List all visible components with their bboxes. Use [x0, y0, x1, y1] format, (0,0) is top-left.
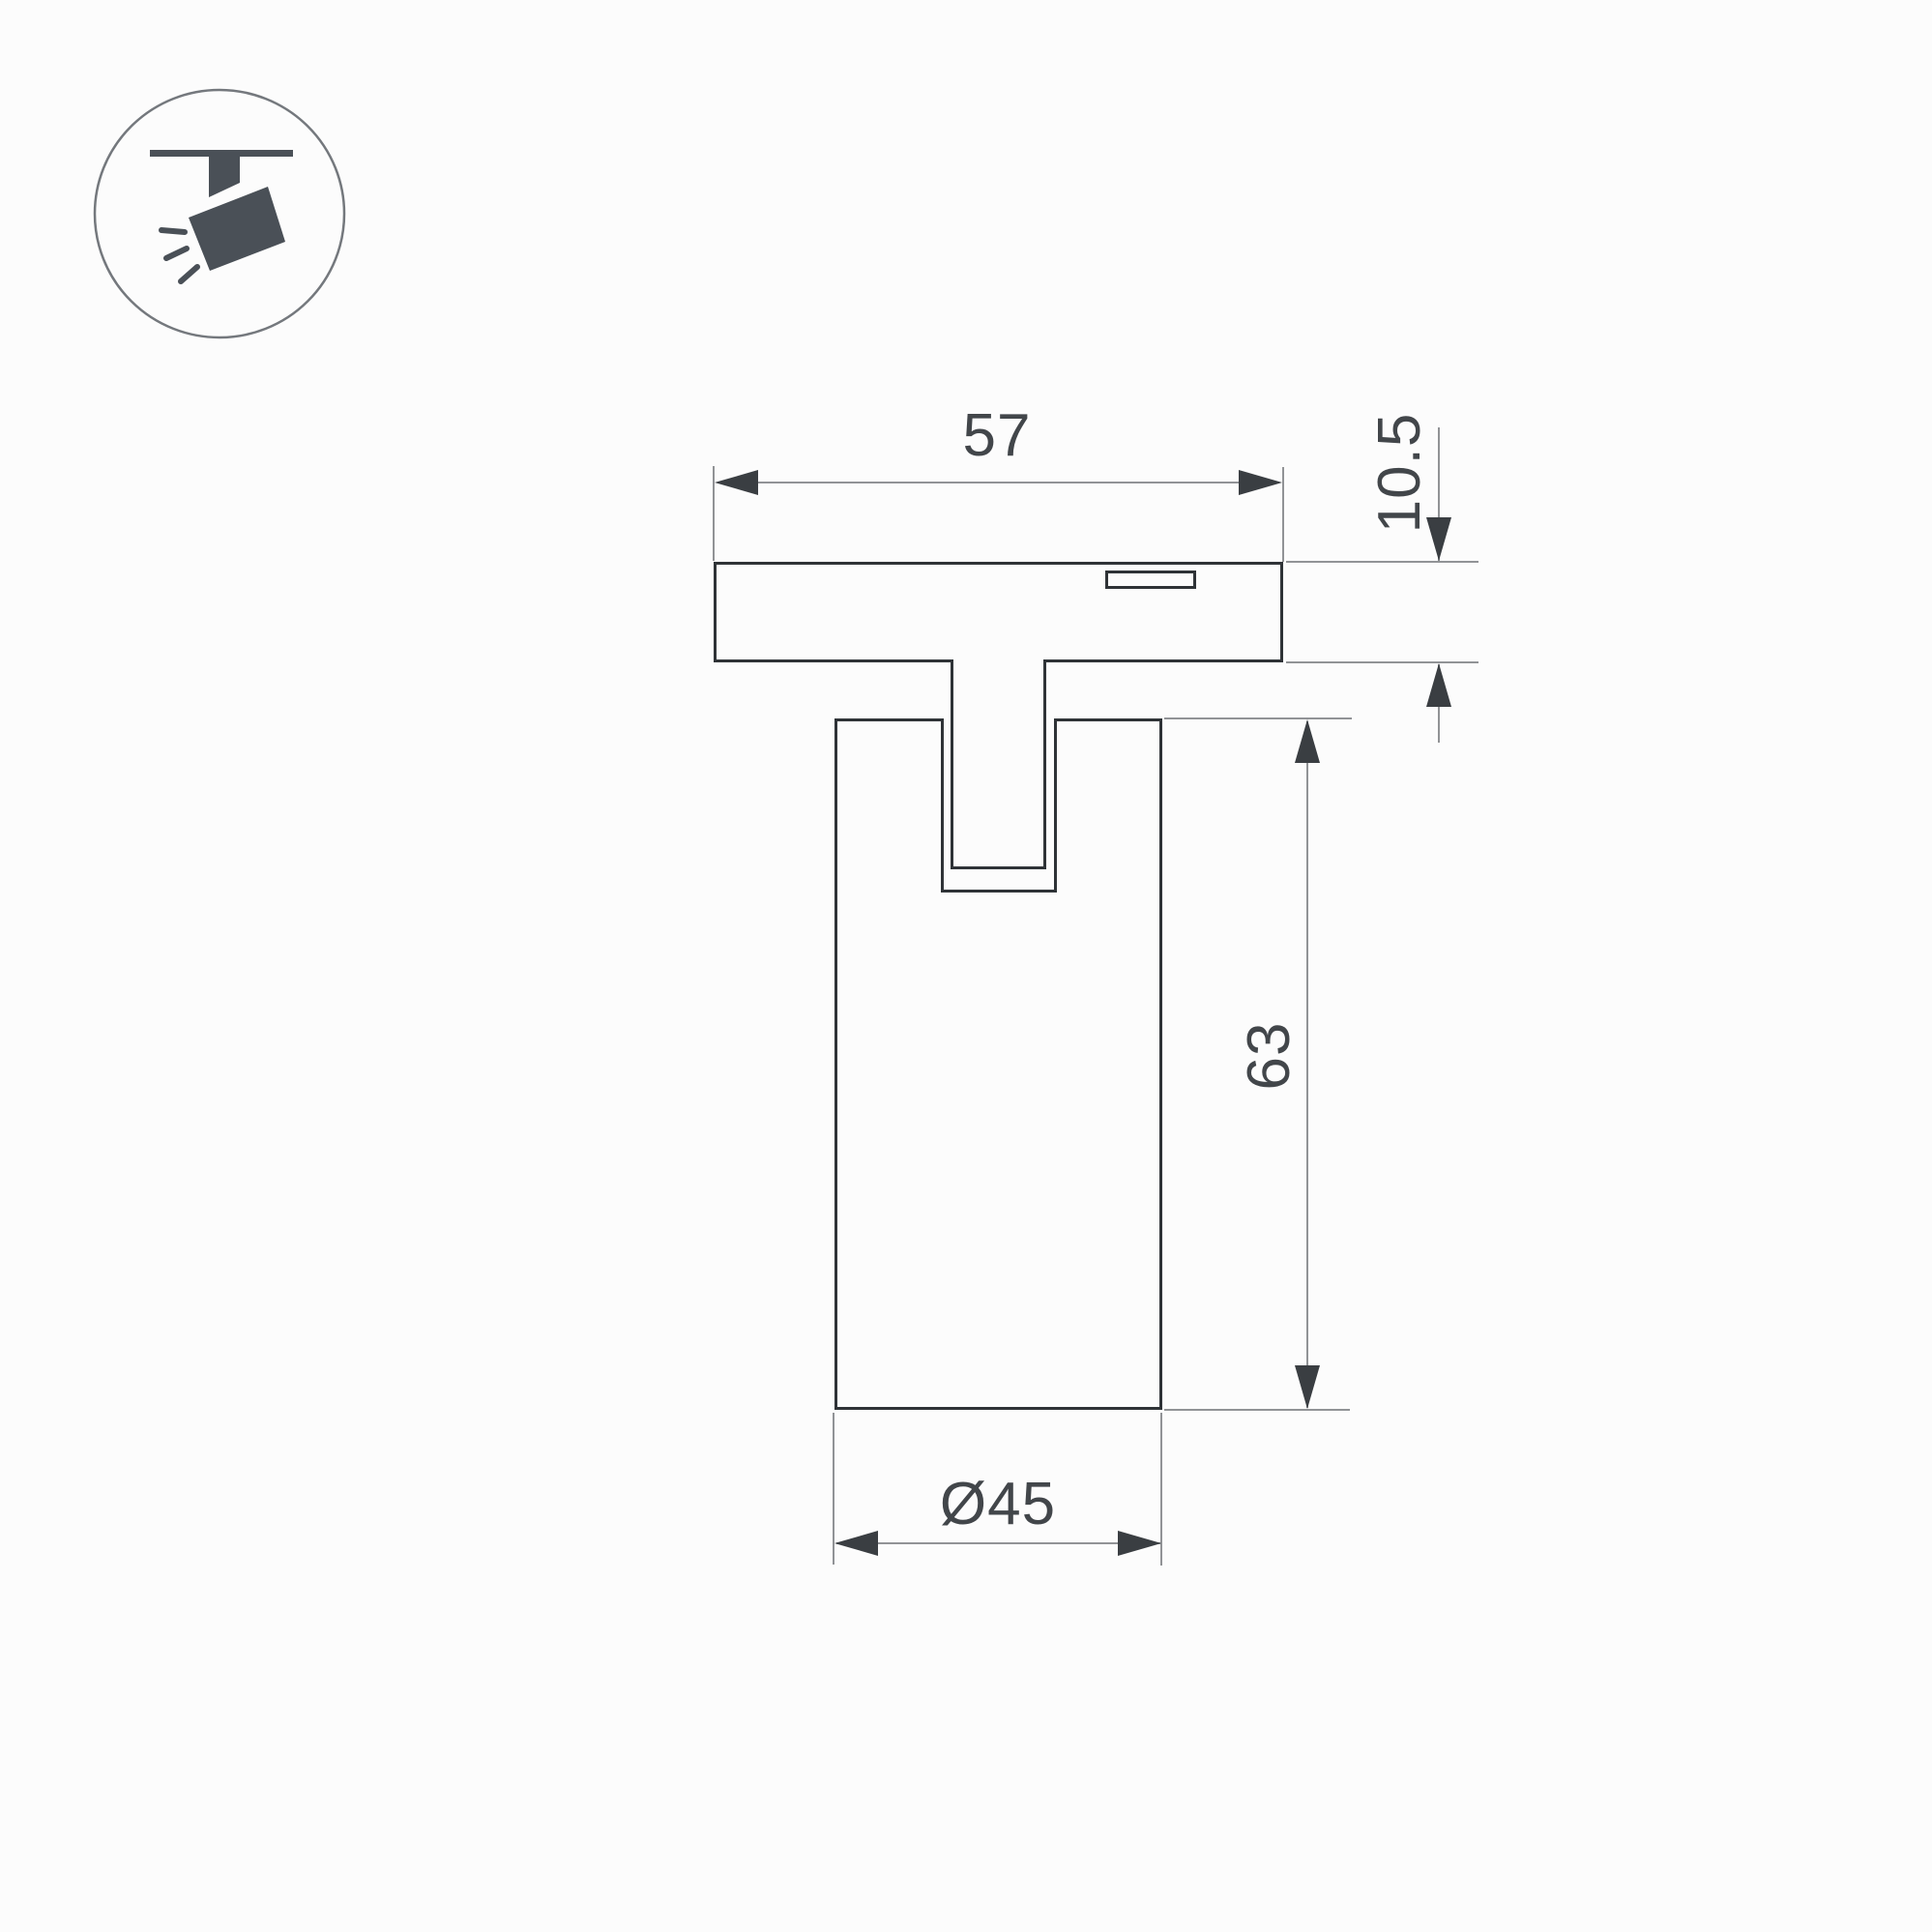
icon-lamp-head: [189, 187, 285, 271]
dim-57-line: [717, 482, 1279, 483]
dim-label-body-height: 63: [1240, 1022, 1300, 1091]
icon-track-bar: [150, 150, 293, 157]
track-spotlight-icon: [92, 87, 347, 340]
dim-label-base-height: 10.5: [1370, 413, 1430, 534]
dim-10-5-extension-top: [1286, 561, 1478, 563]
dim-label-body-diameter: Ø45: [940, 1475, 1056, 1535]
dim-45-arrow-right-icon: [1118, 1531, 1161, 1556]
dim-57-arrow-right-icon: [1239, 470, 1282, 495]
dim-45-line: [836, 1542, 1161, 1544]
dim-63-extension-bottom: [1164, 1409, 1350, 1411]
drawing-canvas: 57 10.5 63 Ø45: [0, 0, 1932, 1932]
dim-63-arrow-up-icon: [1295, 719, 1320, 763]
pivot-stem-outline: [951, 659, 1046, 869]
dim-63-arrow-down-icon: [1295, 1365, 1320, 1409]
adapter-slot-outline: [1105, 571, 1196, 589]
dim-63-line: [1306, 721, 1308, 1408]
dim-57-arrow-left-icon: [715, 470, 758, 495]
icon-stem: [209, 157, 240, 197]
track-adapter-plate-outline: [714, 562, 1283, 662]
dim-label-track-width: 57: [963, 406, 1032, 466]
dim-63-extension-top: [1164, 717, 1352, 719]
dim-57-extension-right: [1282, 467, 1284, 562]
dim-10-5-arrow-up-icon: [1426, 663, 1451, 707]
track-spotlight-badge: [92, 87, 347, 340]
dim-45-arrow-left-icon: [834, 1531, 878, 1556]
icon-light-rays: [161, 230, 197, 281]
